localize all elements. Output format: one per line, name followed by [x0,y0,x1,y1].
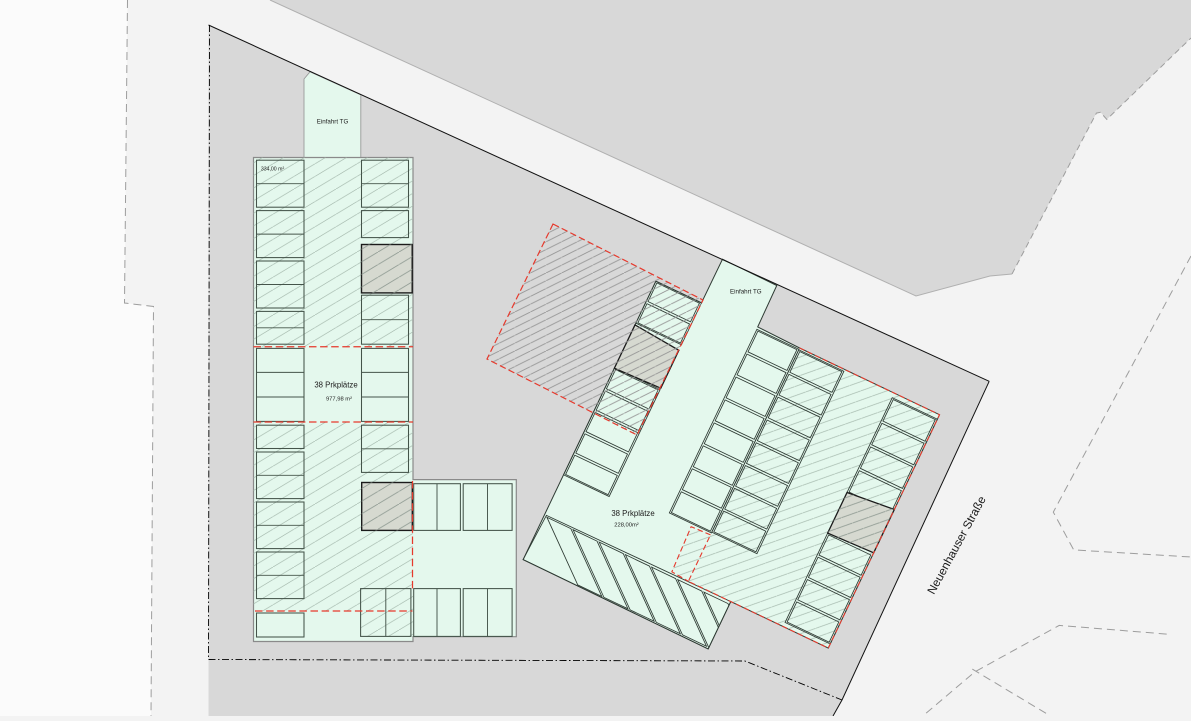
svg-text:334,00 m²: 334,00 m² [261,167,285,173]
svg-text:Einfahrt TG: Einfahrt TG [317,119,349,126]
svg-text:228,00m²: 228,00m² [614,523,639,529]
svg-text:38 Prkplätze: 38 Prkplätze [314,380,357,389]
svg-text:Einfahrt TG: Einfahrt TG [730,289,762,296]
svg-text:977,98 m²: 977,98 m² [326,397,352,403]
svg-text:38 Prkplätze: 38 Prkplätze [611,509,654,518]
